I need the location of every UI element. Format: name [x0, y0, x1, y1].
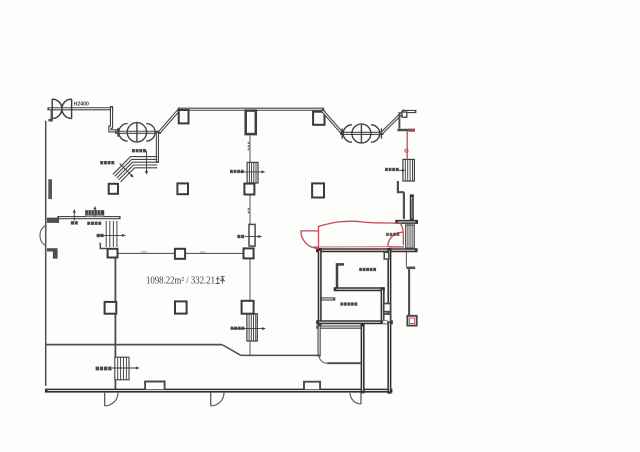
svg-text:H2400: H2400 — [74, 102, 89, 108]
svg-text:1098.22m² / 332.21: 1098.22m² / 332.21 — [146, 276, 215, 287]
